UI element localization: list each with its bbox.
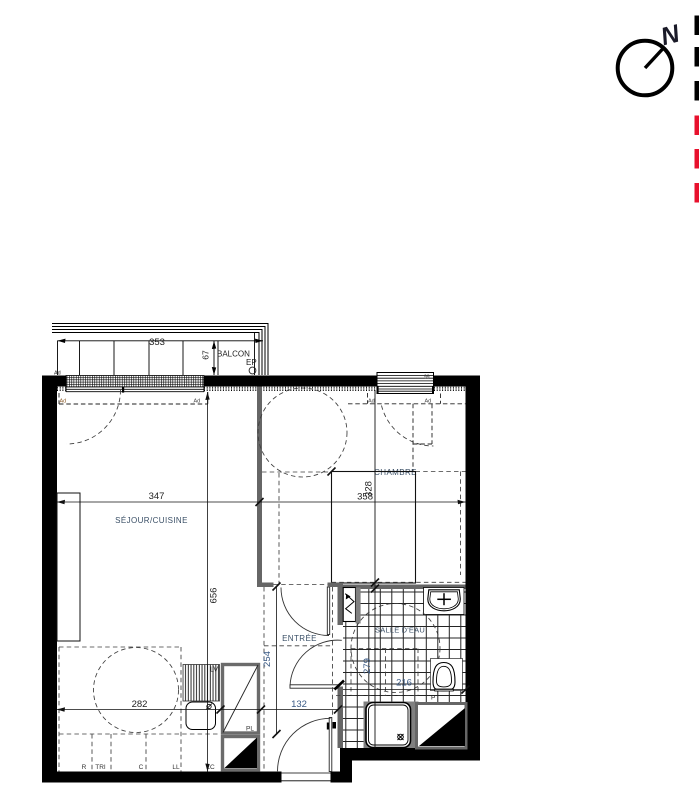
svg-text:Ad: Ad [368,399,375,405]
svg-text:Ad: Ad [425,399,432,405]
svg-text:67: 67 [201,350,211,360]
svg-text:353: 353 [149,337,165,348]
svg-text:328: 328 [364,481,375,497]
svg-text:Ad: Ad [60,399,67,405]
svg-text:254: 254 [262,651,273,667]
svg-text:ENTRÉE: ENTRÉE [282,634,317,643]
svg-text:LV: LV [210,667,218,674]
svg-text:P: P [431,695,435,702]
svg-text:TRI: TRI [95,764,106,771]
svg-text:LL: LL [172,764,180,771]
svg-text:SÉJOUR/CUISINE: SÉJOUR/CUISINE [115,516,188,525]
svg-text:132: 132 [291,699,307,710]
svg-text:CHAMBRE: CHAMBRE [374,468,417,477]
svg-text:216: 216 [396,678,412,689]
svg-text:99: 99 [424,375,430,381]
svg-text:279: 279 [362,658,373,674]
svg-text:Ad: Ad [194,399,201,405]
svg-text:347: 347 [149,491,165,502]
svg-text:EP: EP [246,358,257,367]
svg-text:C: C [139,764,144,771]
svg-text:656: 656 [209,588,220,604]
svg-text:SALLE D'EAU: SALLE D'EAU [375,626,425,635]
svg-text:PL: PL [246,726,254,733]
svg-text:282: 282 [132,699,148,710]
svg-text:R: R [82,764,87,771]
